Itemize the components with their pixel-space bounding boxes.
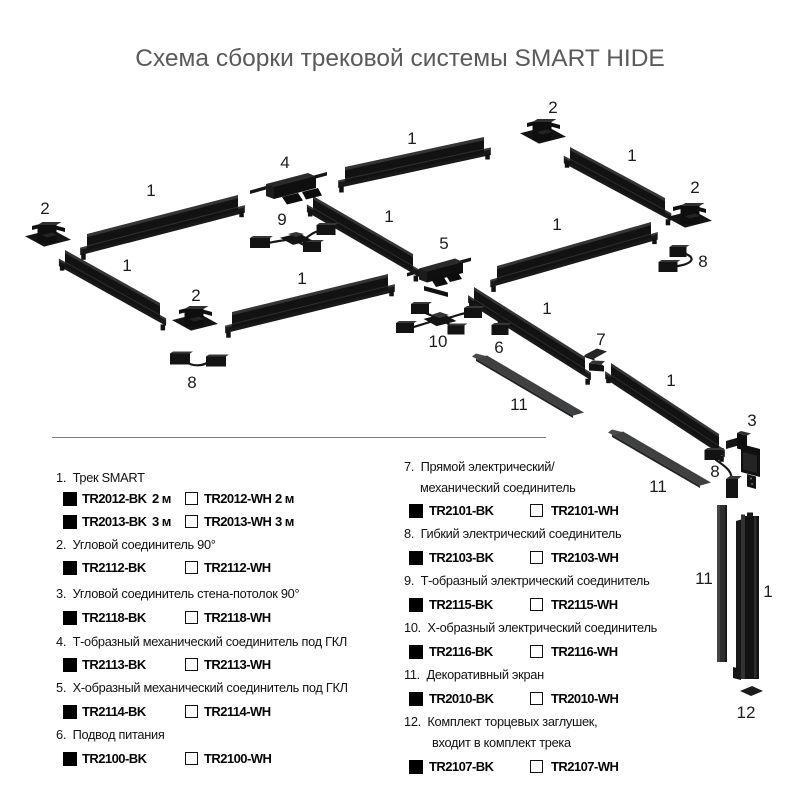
svg-text:7: 7: [596, 330, 605, 349]
svg-text:2: 2: [191, 286, 200, 305]
svg-text:1: 1: [763, 582, 772, 601]
svg-text:6: 6: [494, 338, 503, 357]
svg-text:1: 1: [666, 371, 675, 390]
svg-text:8: 8: [710, 462, 719, 481]
svg-text:1: 1: [122, 256, 131, 275]
svg-text:1: 1: [384, 207, 393, 226]
svg-text:1: 1: [552, 215, 561, 234]
svg-text:1: 1: [542, 299, 551, 318]
svg-text:5: 5: [439, 234, 448, 253]
svg-text:11: 11: [695, 569, 713, 588]
svg-text:11: 11: [510, 395, 528, 414]
svg-text:2: 2: [40, 199, 49, 218]
svg-text:1: 1: [297, 269, 306, 288]
svg-text:8: 8: [187, 373, 196, 392]
svg-text:12: 12: [737, 703, 756, 722]
svg-text:1: 1: [146, 181, 155, 200]
svg-text:2: 2: [690, 178, 699, 197]
svg-text:1: 1: [407, 129, 416, 148]
svg-text:2: 2: [548, 98, 557, 117]
svg-text:4: 4: [280, 153, 289, 172]
svg-text:8: 8: [698, 252, 707, 271]
svg-text:1: 1: [627, 146, 636, 165]
svg-text:11: 11: [649, 477, 667, 496]
svg-text:10: 10: [429, 332, 448, 351]
svg-text:9: 9: [277, 210, 286, 229]
svg-text:3: 3: [747, 411, 756, 430]
